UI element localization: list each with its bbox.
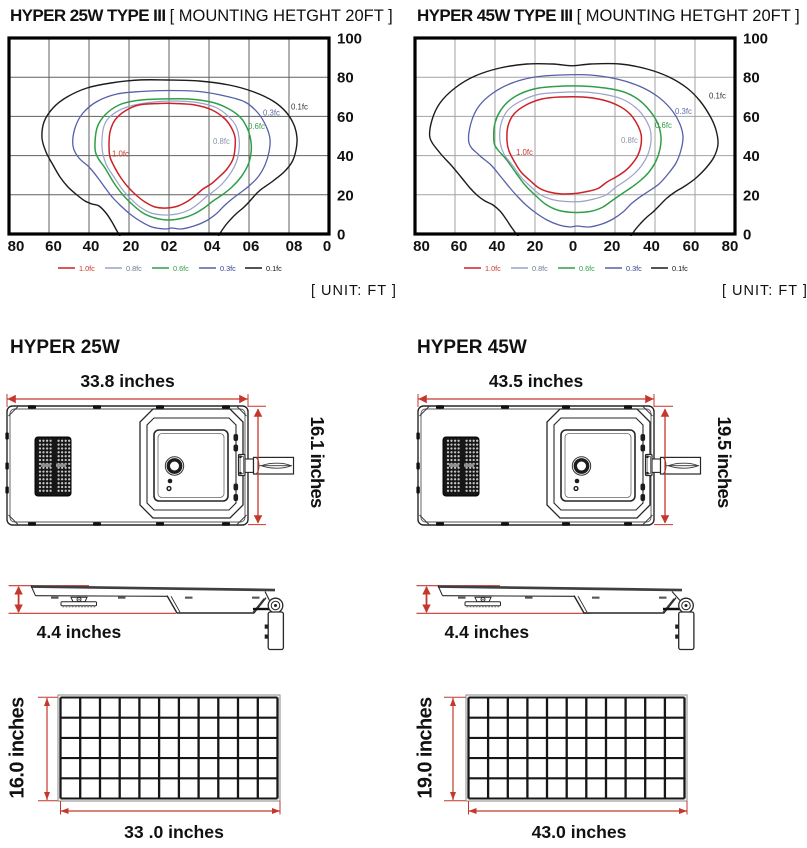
svg-text:0.8fc: 0.8fc [532, 264, 548, 273]
svg-text:0: 0 [323, 238, 331, 255]
svg-text:20: 20 [123, 238, 140, 255]
svg-text:1.0fc: 1.0fc [516, 148, 533, 157]
svg-text:0.1fc: 0.1fc [266, 264, 282, 273]
svg-text:80: 80 [337, 70, 354, 87]
svg-text:16.0 inches: 16.0 inches [7, 697, 29, 799]
svg-text:4.4 inches: 4.4 inches [445, 622, 530, 642]
svg-text:20: 20 [743, 187, 760, 204]
svg-text:60: 60 [451, 238, 468, 255]
svg-text:19.0 inches: 19.0 inches [415, 697, 437, 799]
svg-text:60: 60 [743, 109, 760, 126]
svg-text:08: 08 [286, 238, 303, 255]
svg-text:20: 20 [337, 187, 354, 204]
svg-text:33.8 inches: 33.8 inches [80, 371, 175, 391]
svg-text:1.0fc: 1.0fc [79, 264, 95, 273]
svg-text:4.4 inches: 4.4 inches [37, 622, 122, 642]
svg-text:0.3fc: 0.3fc [675, 107, 692, 116]
svg-text:40: 40 [83, 238, 100, 255]
svg-text:20: 20 [527, 238, 544, 255]
svg-text:100: 100 [337, 31, 362, 48]
svg-text:02: 02 [161, 238, 178, 255]
svg-text:0.8fc: 0.8fc [621, 136, 638, 145]
svg-text:1.0fc: 1.0fc [112, 150, 129, 159]
svg-text:0: 0 [743, 227, 751, 244]
svg-text:0.3fc: 0.3fc [626, 264, 642, 273]
svg-text:0: 0 [337, 227, 345, 244]
svg-text:20: 20 [604, 238, 621, 255]
svg-text:0.3fc: 0.3fc [220, 264, 236, 273]
svg-text:0.1fc: 0.1fc [672, 264, 688, 273]
svg-text:40: 40 [743, 148, 760, 165]
svg-text:33 .0 inches: 33 .0 inches [124, 822, 224, 842]
svg-text:100: 100 [743, 31, 768, 48]
svg-text:0.8fc: 0.8fc [213, 137, 230, 146]
svg-text:40: 40 [489, 238, 506, 255]
svg-text:80: 80 [413, 238, 430, 255]
svg-text:60: 60 [337, 109, 354, 126]
svg-text:43.0 inches: 43.0 inches [532, 822, 627, 842]
svg-text:0.6fc: 0.6fc [248, 122, 265, 131]
svg-text:60: 60 [45, 238, 62, 255]
svg-text:19.5 inches: 19.5 inches [714, 417, 735, 508]
svg-text:60: 60 [683, 238, 700, 255]
svg-text:0.6fc: 0.6fc [655, 121, 672, 130]
svg-text:80: 80 [8, 238, 25, 255]
svg-text:04: 04 [204, 238, 221, 255]
svg-text:0.6fc: 0.6fc [579, 264, 595, 273]
svg-text:0.3fc: 0.3fc [263, 109, 280, 118]
svg-text:06: 06 [243, 238, 260, 255]
svg-text:16.1 inches: 16.1 inches [307, 417, 328, 508]
svg-text:1.0fc: 1.0fc [485, 264, 501, 273]
svg-text:40: 40 [337, 148, 354, 165]
svg-text:0.6fc: 0.6fc [173, 264, 189, 273]
svg-text:80: 80 [722, 238, 739, 255]
svg-text:0: 0 [569, 238, 577, 255]
svg-text:0.1fc: 0.1fc [291, 103, 308, 112]
svg-text:80: 80 [743, 70, 760, 87]
svg-text:0.1fc: 0.1fc [709, 92, 726, 101]
svg-text:40: 40 [643, 238, 660, 255]
svg-text:0.8fc: 0.8fc [126, 264, 142, 273]
svg-text:43.5 inches: 43.5 inches [489, 371, 584, 391]
